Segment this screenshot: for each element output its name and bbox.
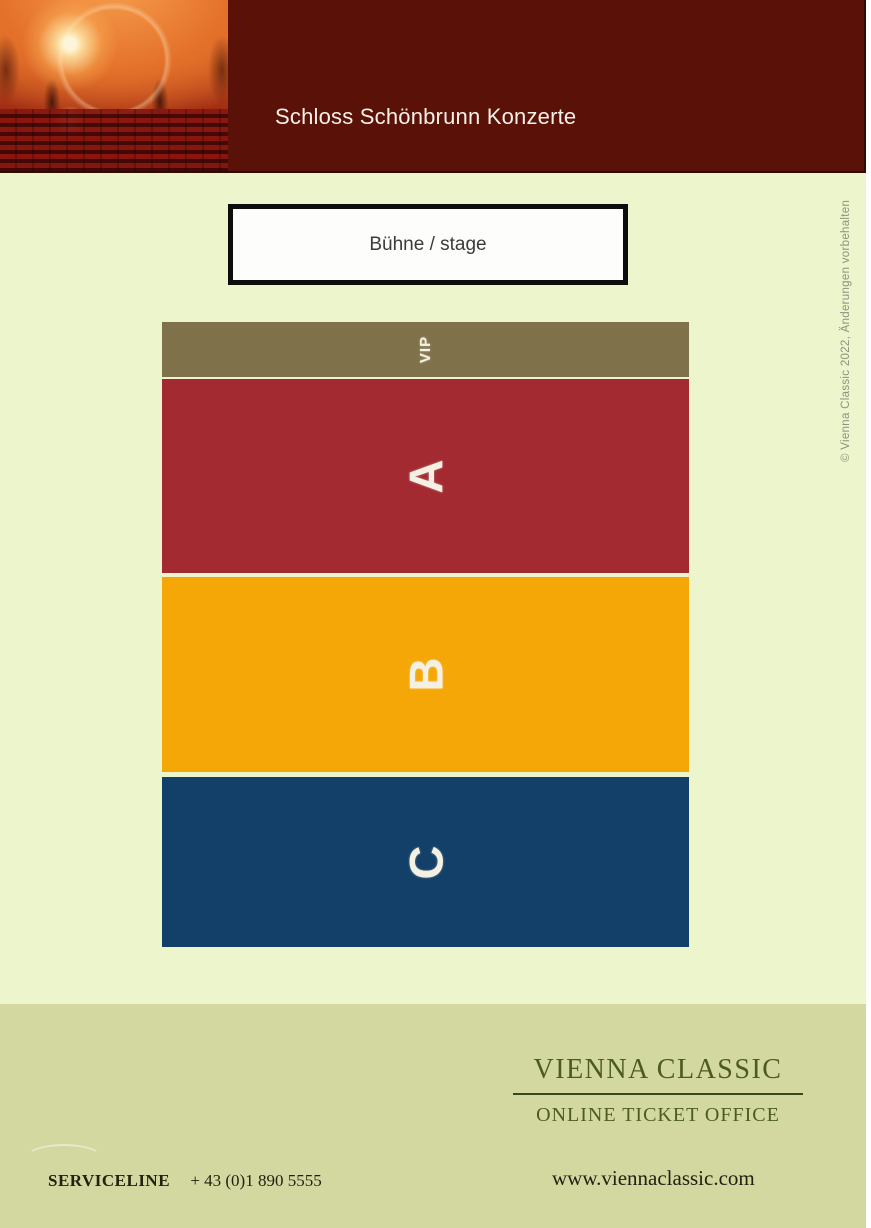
seat-map: Bühne / stage VIP A B C: [0, 173, 866, 1004]
section-b-label: B: [398, 658, 453, 692]
section-a[interactable]: A: [162, 379, 689, 573]
stage-label: Bühne / stage: [369, 234, 486, 256]
footer: VIENNA CLASSIC ONLINE TICKET OFFICE SERV…: [0, 1004, 866, 1228]
brand-title: VIENNA CLASSIC: [513, 1054, 803, 1086]
section-vip[interactable]: VIP: [162, 322, 689, 377]
brand-divider: [513, 1093, 803, 1095]
copyright-note: © Vienna Classic 2022, Änderungen vorbeh…: [840, 200, 852, 462]
decorative-arc: [25, 1144, 103, 1172]
serviceline: SERVICELINE + 43 (0)1 890 5555: [48, 1171, 322, 1191]
concert-hall-photo: [0, 0, 228, 171]
serviceline-label: SERVICELINE: [48, 1171, 170, 1190]
header: Schloss Schönbrunn Konzerte: [0, 0, 866, 173]
serviceline-number: + 43 (0)1 890 5555: [190, 1171, 321, 1190]
brand-block: VIENNA CLASSIC ONLINE TICKET OFFICE: [513, 1054, 803, 1127]
section-a-label: A: [398, 459, 453, 493]
website-link[interactable]: www.viennaclassic.com: [552, 1166, 755, 1191]
section-vip-label: VIP: [417, 336, 434, 363]
section-c[interactable]: C: [162, 777, 689, 947]
audience-chairs-rows: [0, 109, 228, 171]
stage-box: Bühne / stage: [228, 204, 628, 285]
section-c-label: C: [398, 845, 453, 879]
brand-tagline: ONLINE TICKET OFFICE: [513, 1104, 803, 1127]
section-b[interactable]: B: [162, 577, 689, 772]
page-title: Schloss Schönbrunn Konzerte: [275, 104, 576, 130]
